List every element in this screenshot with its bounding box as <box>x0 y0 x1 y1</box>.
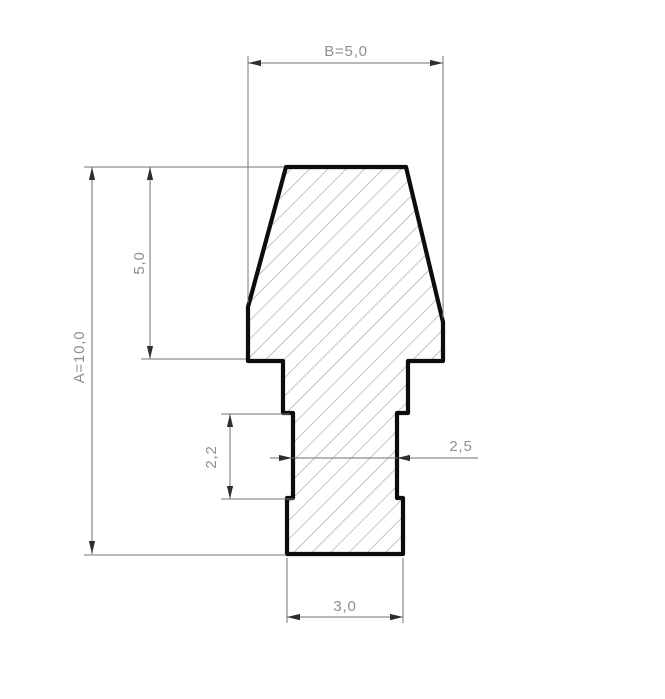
arrow-a-top <box>89 167 95 180</box>
part-cross-section <box>248 167 443 554</box>
dim-label-waist-width: 2,5 <box>449 438 472 455</box>
arrow-base-left <box>287 614 300 620</box>
dim-label-base-width: 3,0 <box>333 598 356 615</box>
arrow-a-bottom <box>89 541 95 554</box>
dim-label-overall-height: A=10,0 <box>71 331 88 384</box>
arrow-head-top <box>147 167 153 180</box>
arrow-base-right <box>390 614 403 620</box>
arrow-b-right <box>430 60 443 66</box>
technical-drawing: B=5,0 A=10,0 5,0 2,2 2,5 3,0 <box>0 0 665 699</box>
drawing-canvas: B=5,0 A=10,0 5,0 2,2 2,5 3,0 <box>0 0 665 699</box>
arrow-b-left <box>248 60 261 66</box>
arrow-waist-left <box>279 455 292 461</box>
dim-label-groove-height: 2,2 <box>203 445 220 468</box>
dim-label-head-height: 5,0 <box>131 251 148 274</box>
arrow-groove-bottom <box>227 486 233 499</box>
arrow-groove-top <box>227 414 233 427</box>
dim-label-top-width: B=5,0 <box>324 43 368 60</box>
arrow-head-bottom <box>147 346 153 359</box>
